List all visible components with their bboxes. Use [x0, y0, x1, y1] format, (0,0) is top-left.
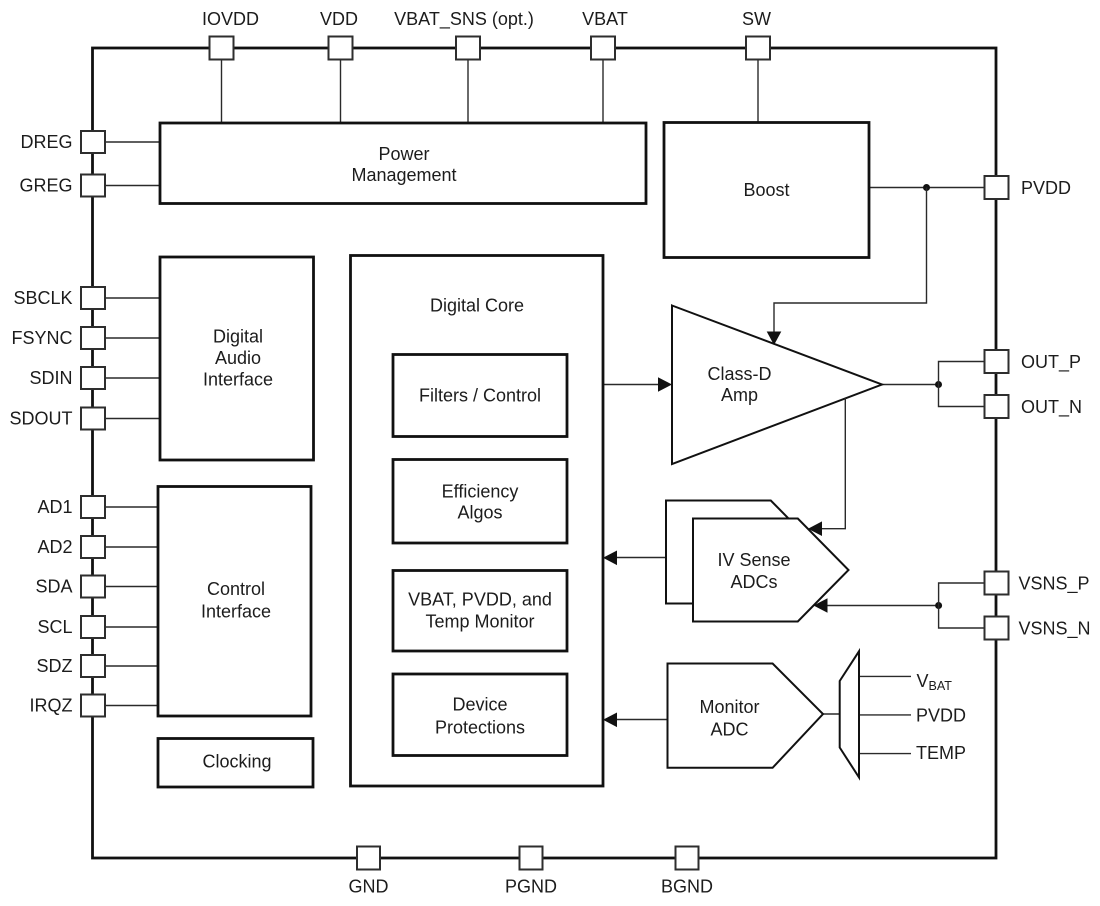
svg-text:ADCs: ADCs: [730, 572, 777, 592]
svg-text:IOVDD: IOVDD: [202, 9, 259, 29]
svg-text:Management: Management: [351, 165, 456, 185]
svg-text:VDD: VDD: [320, 9, 358, 29]
svg-text:Power: Power: [378, 144, 429, 164]
svg-text:TEMP: TEMP: [916, 743, 966, 763]
svg-text:VBAT_SNS (opt.): VBAT_SNS (opt.): [394, 9, 534, 30]
svg-text:Interface: Interface: [201, 602, 271, 622]
svg-text:Boost: Boost: [743, 180, 789, 200]
svg-text:Filters / Control: Filters / Control: [419, 386, 541, 406]
svg-text:DREG: DREG: [20, 132, 72, 152]
svg-text:SBCLK: SBCLK: [13, 288, 72, 308]
svg-text:Monitor: Monitor: [699, 697, 759, 717]
svg-text:BGND: BGND: [661, 877, 713, 897]
svg-text:SDOUT: SDOUT: [10, 408, 73, 428]
svg-text:Digital Core: Digital Core: [430, 296, 524, 316]
svg-text:PVDD: PVDD: [1021, 178, 1071, 198]
svg-text:AD2: AD2: [37, 537, 72, 557]
svg-text:OUT_P: OUT_P: [1021, 352, 1081, 373]
svg-text:Amp: Amp: [721, 385, 758, 405]
svg-text:VBAT, PVDD, and: VBAT, PVDD, and: [408, 590, 552, 610]
svg-text:Class-D: Class-D: [707, 364, 771, 384]
svg-text:PVDD: PVDD: [916, 706, 966, 726]
svg-text:IRQZ: IRQZ: [30, 695, 73, 715]
svg-text:Clocking: Clocking: [202, 752, 271, 772]
svg-text:PGND: PGND: [505, 877, 557, 897]
svg-text:OUT_N: OUT_N: [1021, 397, 1082, 418]
svg-text:GREG: GREG: [19, 175, 72, 195]
svg-text:Control: Control: [207, 579, 265, 599]
svg-text:Protections: Protections: [435, 718, 525, 738]
svg-text:SDIN: SDIN: [29, 368, 72, 388]
svg-text:ADC: ADC: [710, 720, 748, 740]
svg-text:SDA: SDA: [35, 576, 72, 596]
svg-text:VSNS_N: VSNS_N: [1019, 619, 1091, 640]
svg-text:GND: GND: [349, 877, 389, 897]
svg-text:IV Sense: IV Sense: [717, 550, 790, 570]
svg-text:VSNS_P: VSNS_P: [1019, 574, 1090, 595]
svg-text:SCL: SCL: [37, 617, 72, 637]
svg-text:FSYNC: FSYNC: [11, 328, 72, 348]
svg-text:Algos: Algos: [457, 503, 502, 523]
svg-text:Efficiency: Efficiency: [442, 482, 519, 502]
svg-text:Interface: Interface: [203, 370, 273, 390]
svg-text:Temp Monitor: Temp Monitor: [425, 612, 534, 632]
svg-text:Audio: Audio: [215, 348, 261, 368]
svg-text:Digital: Digital: [213, 327, 263, 347]
svg-text:AD1: AD1: [37, 497, 72, 517]
svg-text:SW: SW: [742, 9, 771, 29]
svg-text:SDZ: SDZ: [37, 656, 73, 676]
svg-text:Device: Device: [452, 695, 507, 715]
svg-text:VBAT: VBAT: [582, 9, 628, 29]
